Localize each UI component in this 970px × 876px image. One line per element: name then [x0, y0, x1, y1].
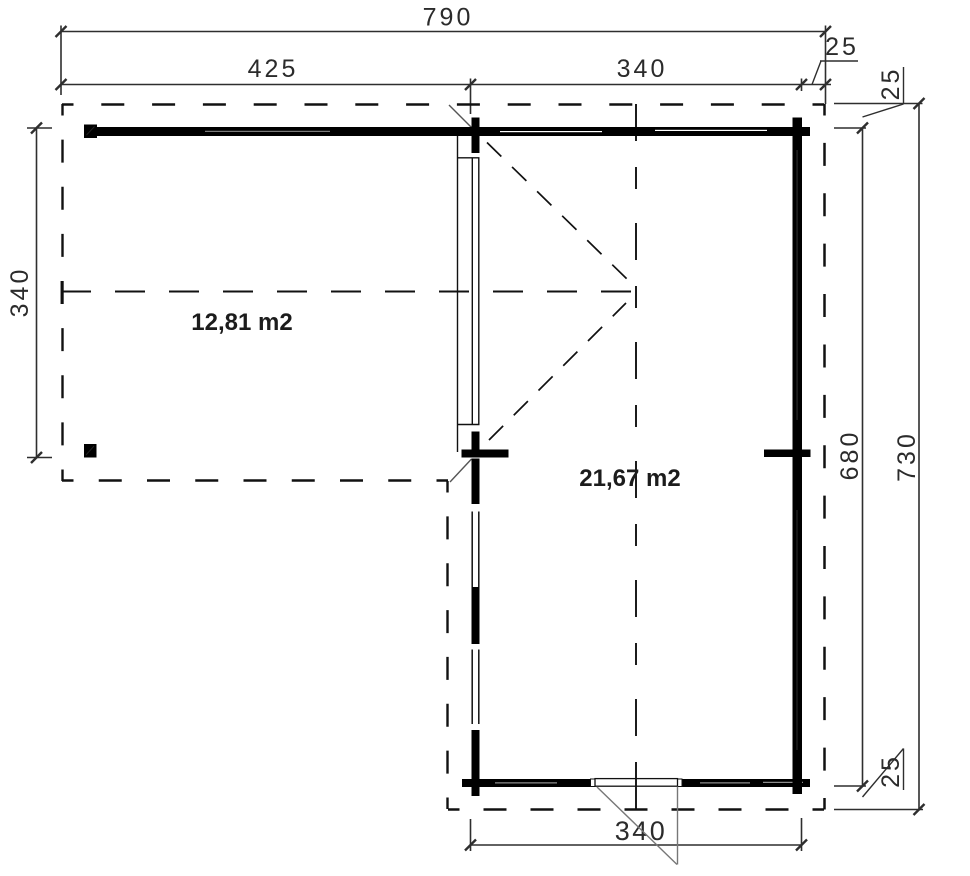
svg-text:340: 340 — [615, 816, 668, 846]
svg-text:730: 730 — [893, 431, 921, 482]
svg-text:21,67 m2: 21,67 m2 — [579, 465, 680, 492]
svg-text:680: 680 — [836, 430, 864, 481]
svg-text:25: 25 — [825, 33, 859, 61]
svg-text:12,81 m2: 12,81 m2 — [191, 309, 292, 336]
svg-text:790: 790 — [423, 4, 474, 32]
svg-text:340: 340 — [617, 55, 668, 83]
svg-text:425: 425 — [248, 55, 299, 83]
svg-text:340: 340 — [6, 267, 34, 318]
svg-text:25: 25 — [877, 754, 905, 788]
svg-text:25: 25 — [877, 67, 905, 101]
